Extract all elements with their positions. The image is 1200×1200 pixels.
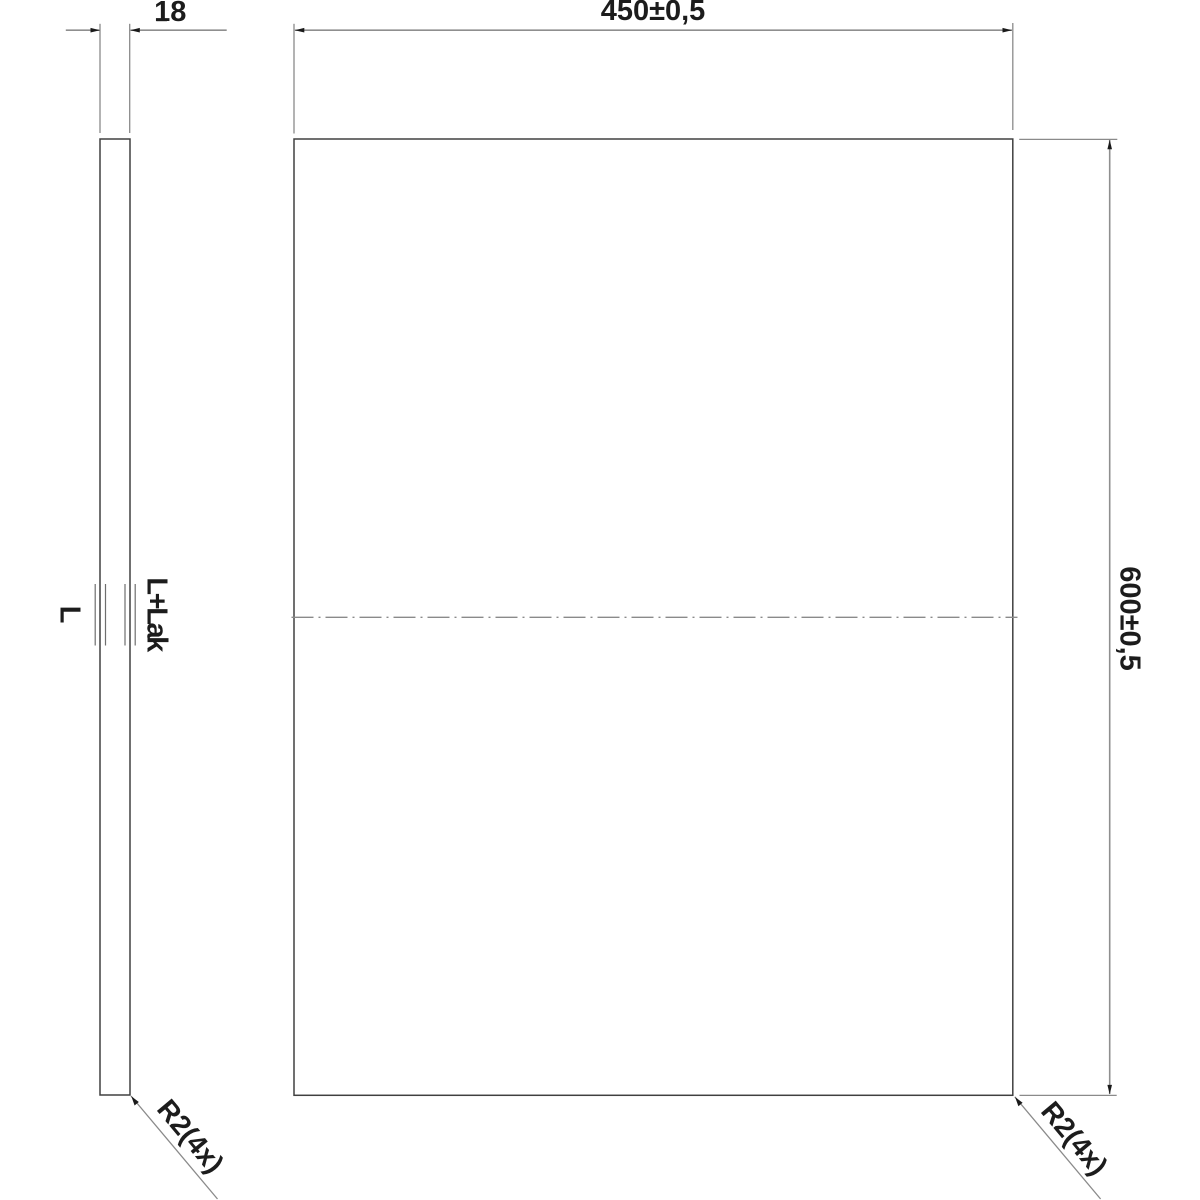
svg-text:L: L [54,606,86,624]
svg-text:450±0,5: 450±0,5 [601,0,706,27]
svg-text:18: 18 [154,0,186,28]
svg-text:L+Lak: L+Lak [141,577,173,653]
svg-text:600±0,5: 600±0,5 [1114,566,1146,671]
